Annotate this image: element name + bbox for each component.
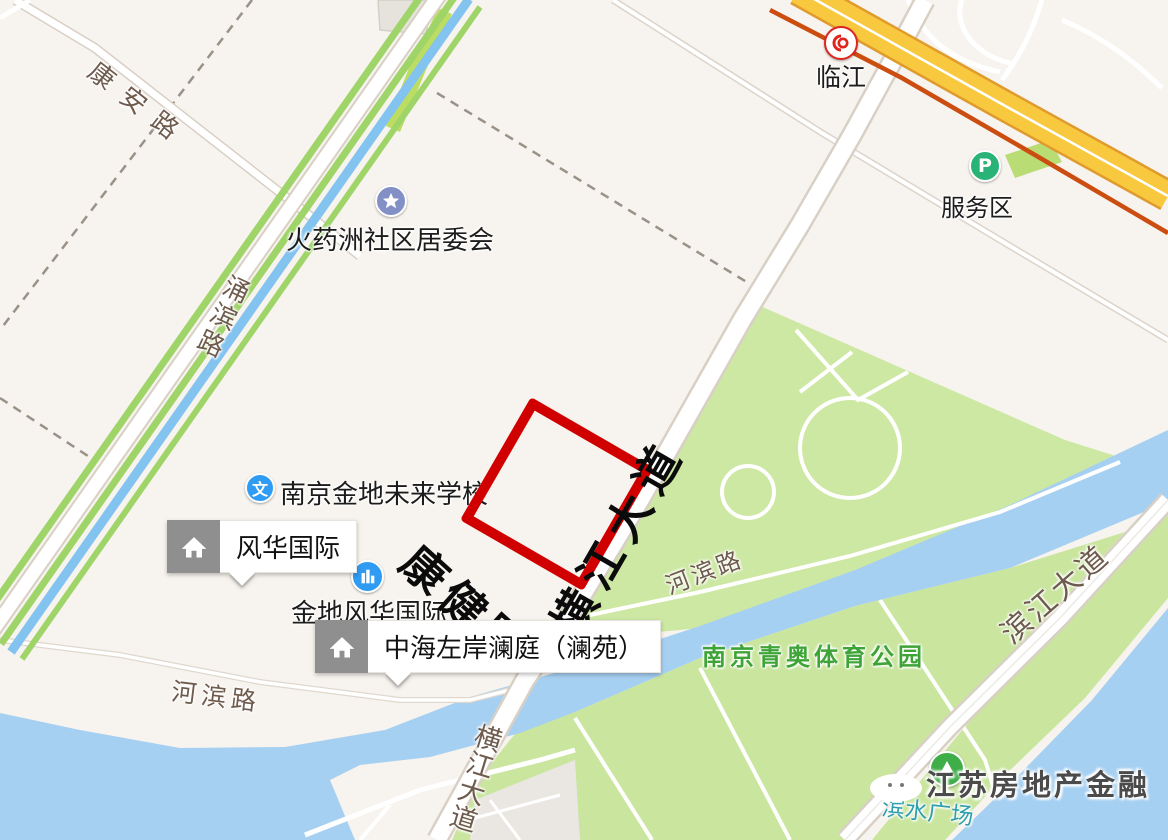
building-icon <box>359 568 376 585</box>
committee-star-icon[interactable] <box>375 185 407 217</box>
qingao-park-label[interactable]: 南京青奥体育公园 <box>702 637 926 672</box>
nanjing-metro-logo <box>831 33 851 53</box>
service-area-label[interactable]: 服务区 <box>941 188 1013 223</box>
parking-letter: P <box>978 155 992 177</box>
metro-station-icon[interactable] <box>824 26 858 60</box>
school-icon-char: 文 <box>252 476 268 500</box>
home-icon <box>315 620 368 673</box>
zhonghai-bubble-label: 中海左岸澜庭（澜苑） <box>368 620 661 673</box>
fenghua-bubble[interactable]: 风华国际 <box>167 520 357 573</box>
zhonghai-bubble[interactable]: 中海左岸澜庭（澜苑） <box>315 620 661 673</box>
school-label[interactable]: 南京金地未来学校 <box>280 474 488 511</box>
school-icon[interactable]: 文 <box>245 473 275 503</box>
star-icon <box>382 192 400 210</box>
committee-label[interactable]: 火药洲社区居委会 <box>286 220 494 257</box>
home-icon <box>167 520 220 573</box>
watermark-text: 江苏房地产金融 <box>926 762 1150 804</box>
map-viewport[interactable]: 康安路 涌滨路 河滨路 河滨路 滨江大道 横江大道 康健路 横江大道 临江 P … <box>0 0 1168 840</box>
parking-icon[interactable]: P <box>969 150 1001 182</box>
watermark-cloud-icon <box>868 768 924 804</box>
metro-station-label[interactable]: 临江 <box>816 58 866 94</box>
